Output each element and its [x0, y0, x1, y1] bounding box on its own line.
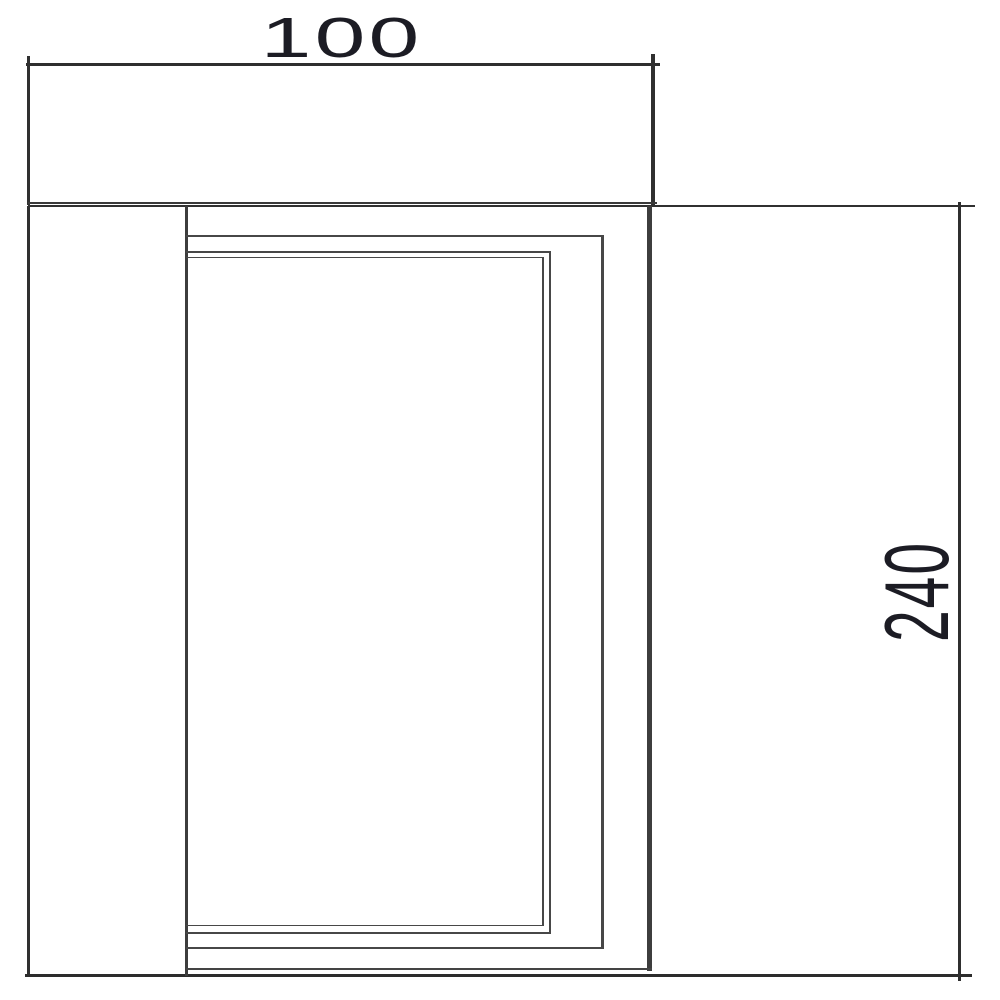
width-dimension-label-box: 100	[237, 6, 447, 70]
door-right-edge	[647, 206, 652, 971]
technical-drawing-canvas: 100 240	[0, 0, 1000, 1000]
door-bottom-edge	[186, 968, 652, 970]
body-top-edge	[28, 205, 975, 207]
body-bottom-edge	[25, 974, 972, 977]
body-left-edge	[27, 206, 30, 977]
top-panel-right-edge	[651, 54, 655, 205]
height-dimension-label-box: 240	[839, 511, 999, 671]
top-panel-left-edge	[27, 56, 30, 205]
top-panel-bottom-edge	[28, 202, 657, 204]
height-dimension-label: 240	[873, 540, 964, 641]
panel-frame-inner-inner	[186, 257, 544, 926]
width-dimension-label: 100	[261, 10, 423, 67]
height-dimension-line	[958, 202, 961, 981]
width-dimension-line	[26, 63, 660, 66]
